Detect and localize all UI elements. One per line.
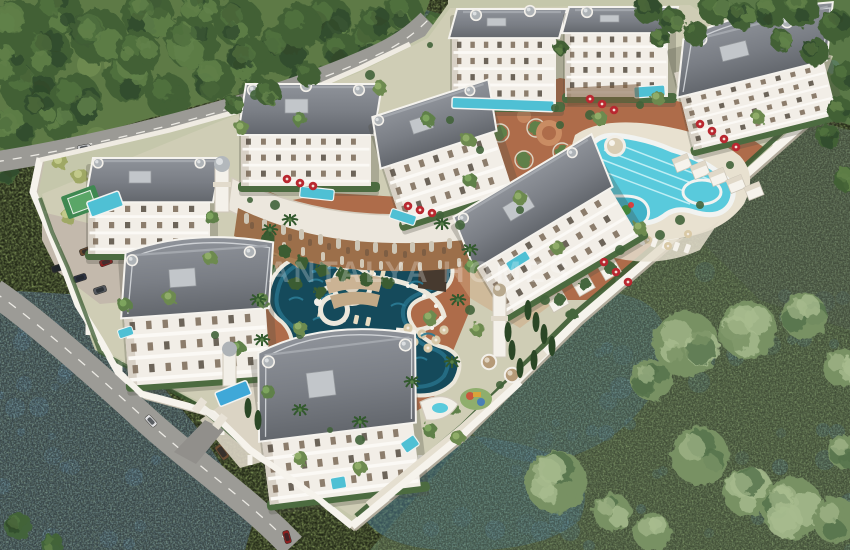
svg-text:ANTALYA HOMES: ANTALYA HOMES — [268, 256, 573, 289]
